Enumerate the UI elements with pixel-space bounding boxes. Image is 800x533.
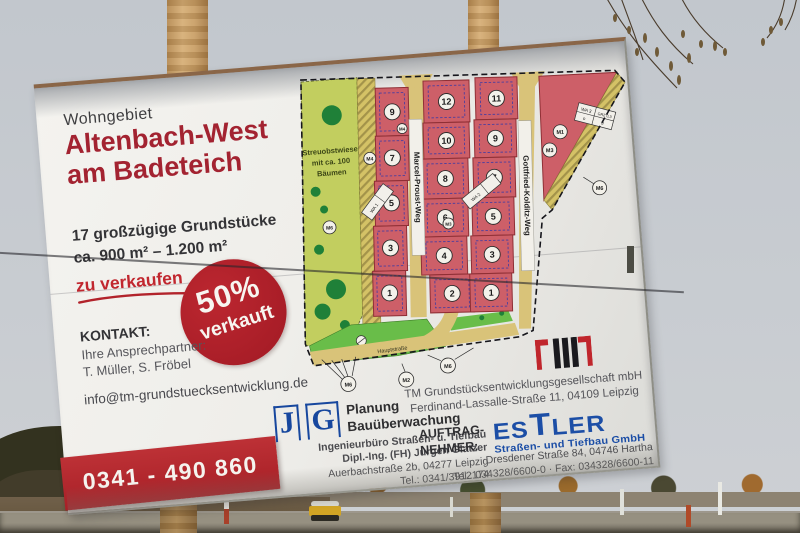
lot-number: 5: [389, 198, 394, 208]
marker-post: [450, 497, 453, 517]
lot-number: 1: [387, 288, 392, 298]
marker-label: M6: [596, 186, 604, 192]
contact-heading: KONTAKT:: [79, 323, 151, 345]
jg-logo-j-icon: J: [273, 404, 301, 442]
lot-number: 7: [390, 153, 395, 163]
contact-email: info@tm-grundstuecksentwicklung.de: [83, 374, 308, 407]
lot-number: 12: [441, 97, 451, 107]
lot-number: 3: [388, 243, 393, 253]
marker-label: M3: [445, 222, 452, 227]
street-label-marcel: Marcel-Proust-Weg: [412, 152, 423, 223]
lot-number: 10: [441, 136, 451, 146]
phone-number-bar: 0341 - 490 860: [60, 436, 280, 511]
contractor-role-label: AUFTRAG- NEHMER:: [418, 423, 486, 459]
jg-logo-g-icon: G: [305, 401, 341, 440]
marker-post: [620, 489, 624, 515]
marker-label: M6: [344, 382, 352, 388]
marker-post: [686, 505, 691, 527]
lot-number: 5: [491, 212, 496, 222]
tm-logo-icon: [535, 336, 593, 372]
lot-number: 9: [390, 107, 395, 117]
sign-edge-bracket: [627, 246, 634, 273]
marker-post: [718, 482, 722, 515]
marker-label: M2: [402, 378, 410, 384]
lot-number: 8: [443, 174, 448, 184]
marker-label: M6: [444, 364, 452, 370]
lot-number: 9: [493, 133, 498, 143]
lot-number: 4: [442, 251, 447, 261]
marker-label: M3: [546, 148, 554, 154]
photo-scene: Wohngebiet Altenbach-West am Badeteich 1…: [0, 0, 800, 533]
marker-label: M1: [556, 130, 564, 136]
marker-label: M6: [326, 225, 333, 231]
construction-machine: [308, 501, 342, 525]
marker-label: M4: [366, 156, 373, 162]
wood-post-right-bottom: [470, 493, 501, 533]
lot-number: 11: [492, 93, 502, 103]
sign-board: Wohngebiet Altenbach-West am Badeteich 1…: [34, 37, 661, 515]
lot-number: 2: [450, 289, 455, 299]
lot-number: 3: [490, 250, 495, 260]
marker-label: M4: [399, 126, 406, 131]
graded-road-strip: [0, 511, 800, 533]
lot-number: 1: [489, 288, 494, 298]
